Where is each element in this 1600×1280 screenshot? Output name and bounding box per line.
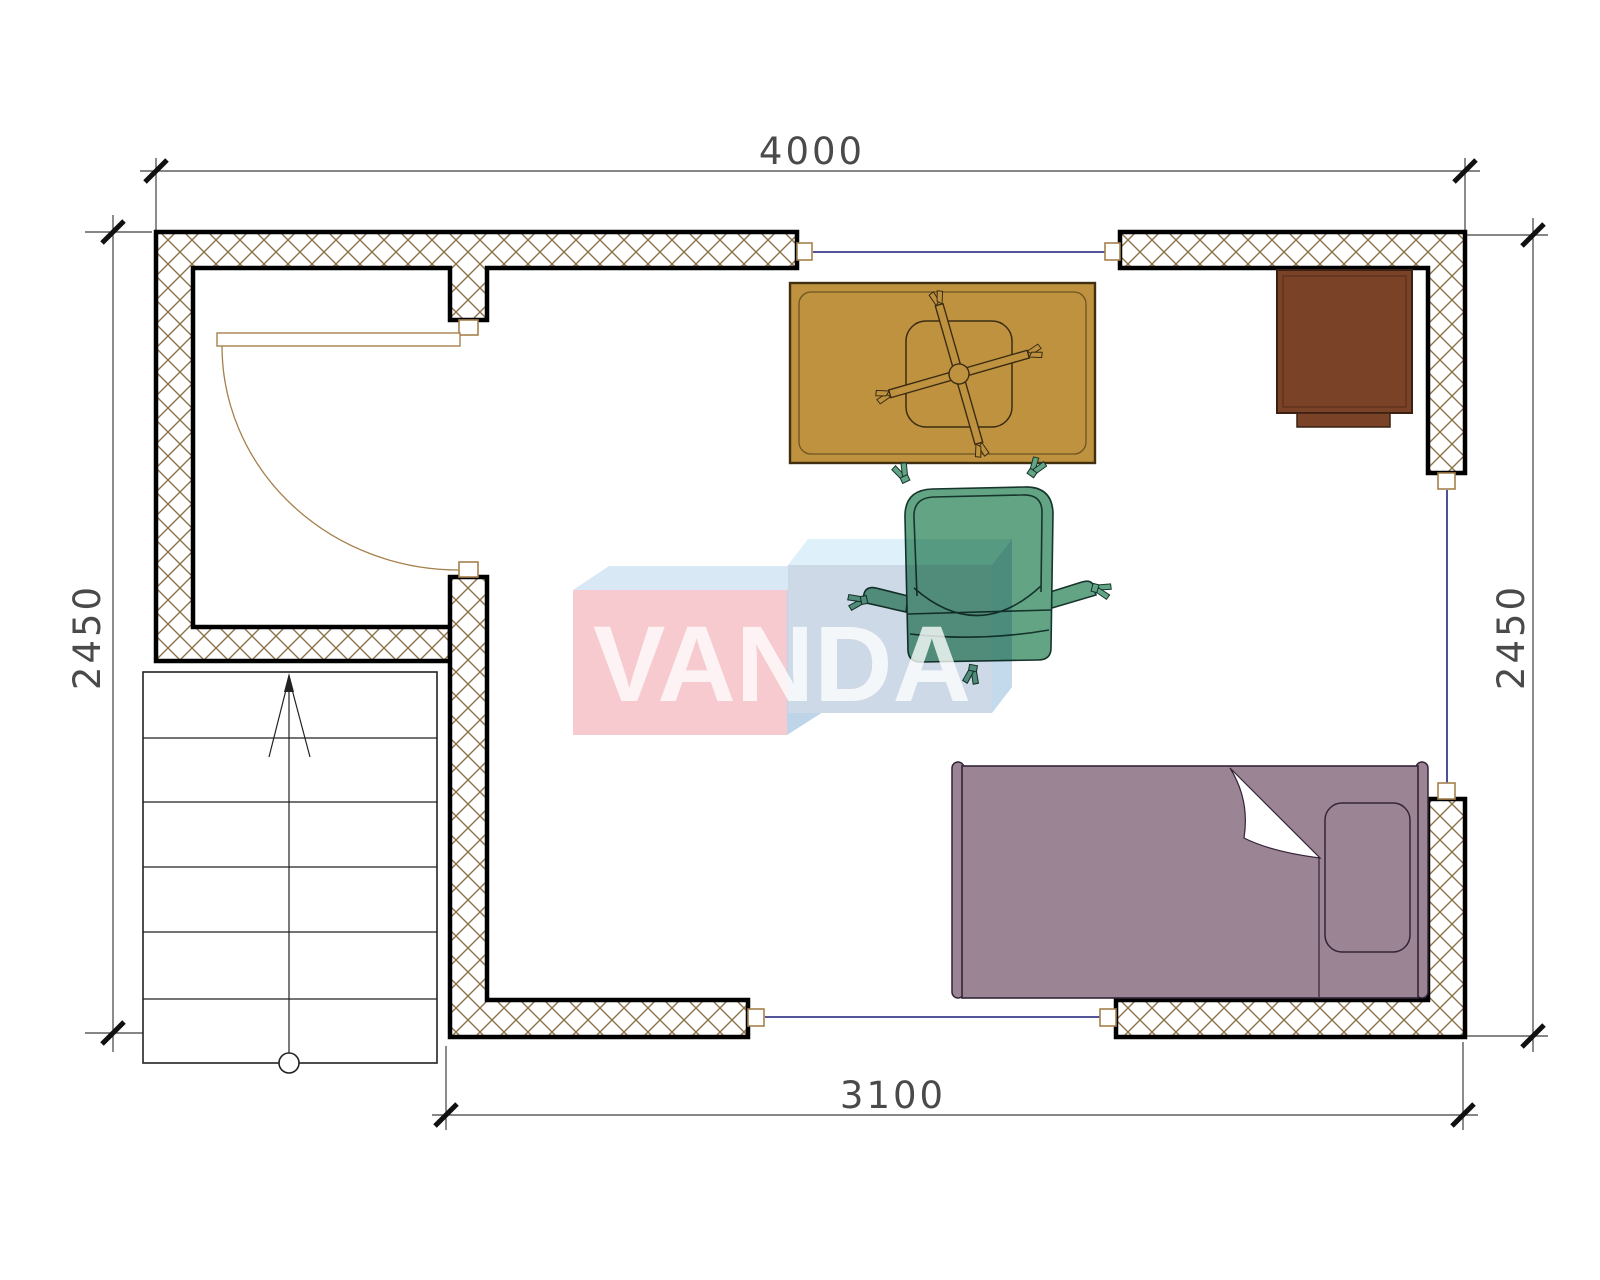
- chair-right-armrest: [1050, 581, 1096, 608]
- window-frame-right-upper: [1438, 473, 1455, 489]
- watermark: VANDA: [573, 539, 1012, 735]
- door-swing-arc: [222, 346, 459, 570]
- window-frame-bottom-left: [748, 1009, 764, 1026]
- watermark-cube-left-top: [573, 566, 823, 590]
- cabinet-base: [1297, 413, 1390, 427]
- floor-plan-canvas: 4000 2450 2450 3100: [0, 0, 1600, 1280]
- watermark-cube-right-top: [788, 539, 1012, 565]
- bed-pillow: [1325, 803, 1410, 952]
- dimension-label-left: 2450: [66, 584, 109, 690]
- stairs-walk-start-circle: [279, 1053, 299, 1073]
- door: [217, 333, 460, 570]
- cabinet-body: [1277, 270, 1412, 413]
- window-frame-bottom-right: [1100, 1009, 1116, 1026]
- watermark-text: VANDA: [593, 603, 971, 724]
- bed: [952, 762, 1428, 998]
- dimension-label-right: 2450: [1490, 584, 1533, 690]
- window-frame-top-left: [797, 243, 812, 260]
- door-leaf: [217, 333, 460, 346]
- dimension-label-bottom: 3100: [840, 1074, 946, 1117]
- door-frame-upper: [459, 320, 478, 335]
- door-frame-lower: [459, 562, 478, 577]
- dimension-label-top: 4000: [759, 130, 865, 173]
- desk-group: [790, 268, 1095, 481]
- stairs: [143, 672, 437, 1073]
- dimension-bottom: [432, 1042, 1478, 1130]
- cabinet: [1277, 270, 1412, 427]
- window-frame-top-right: [1105, 243, 1120, 260]
- window-frame-right-lower: [1438, 783, 1455, 799]
- floor-plan-page: 4000 2450 2450 3100: [0, 0, 1600, 1280]
- watermark-cube-right-side: [992, 539, 1012, 713]
